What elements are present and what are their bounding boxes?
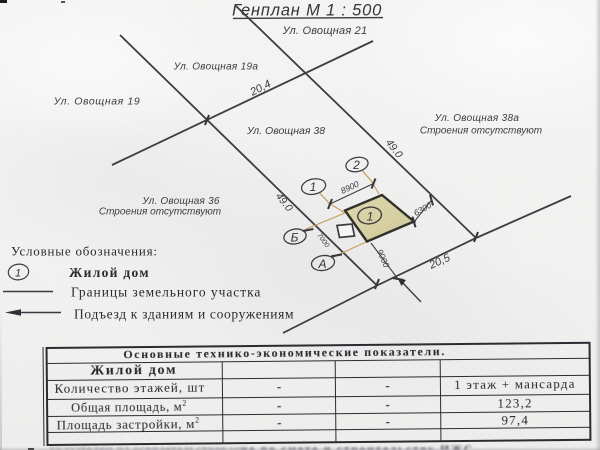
svg-text:Ул. Овощная 38: Ул. Овощная 38 xyxy=(246,125,325,137)
svg-text:Строения отсутствуют: Строения отсутствуют xyxy=(420,126,542,137)
svg-text:1: 1 xyxy=(15,268,21,280)
svg-text:1: 1 xyxy=(310,180,317,194)
svg-text:2: 2 xyxy=(352,158,360,172)
svg-text:Подъезд к зданиям и сооружения: Подъезд к зданиям и сооружениям xyxy=(74,307,294,322)
svg-text:Жилой дом: Жилой дом xyxy=(69,265,150,280)
svg-text:А: А xyxy=(317,257,326,271)
svg-text:Ул. Овощная 19: Ул. Овощная 19 xyxy=(53,96,141,108)
svg-text:Ул. Овощная 36: Ул. Овощная 36 xyxy=(141,196,219,207)
svg-text:Генплан М 1 : 500: Генплан М 1 : 500 xyxy=(232,2,382,20)
svg-text:Границы земельного участка: Границы земельного участка xyxy=(71,285,261,300)
svg-text:Б: Б xyxy=(291,231,299,245)
svg-text:1: 1 xyxy=(367,210,374,224)
svg-text:Условные обозначения:: Условные обозначения: xyxy=(11,244,158,259)
svg-text:Ул. Овощная 19а: Ул. Овощная 19а xyxy=(173,62,259,73)
svg-text:Строения отсутствуют: Строения отсутствуют xyxy=(99,207,221,218)
svg-text:Ул. Овощная 38а: Ул. Овощная 38а xyxy=(434,113,520,124)
svg-text:Ул. Овощная 21: Ул. Овощная 21 xyxy=(282,25,368,37)
